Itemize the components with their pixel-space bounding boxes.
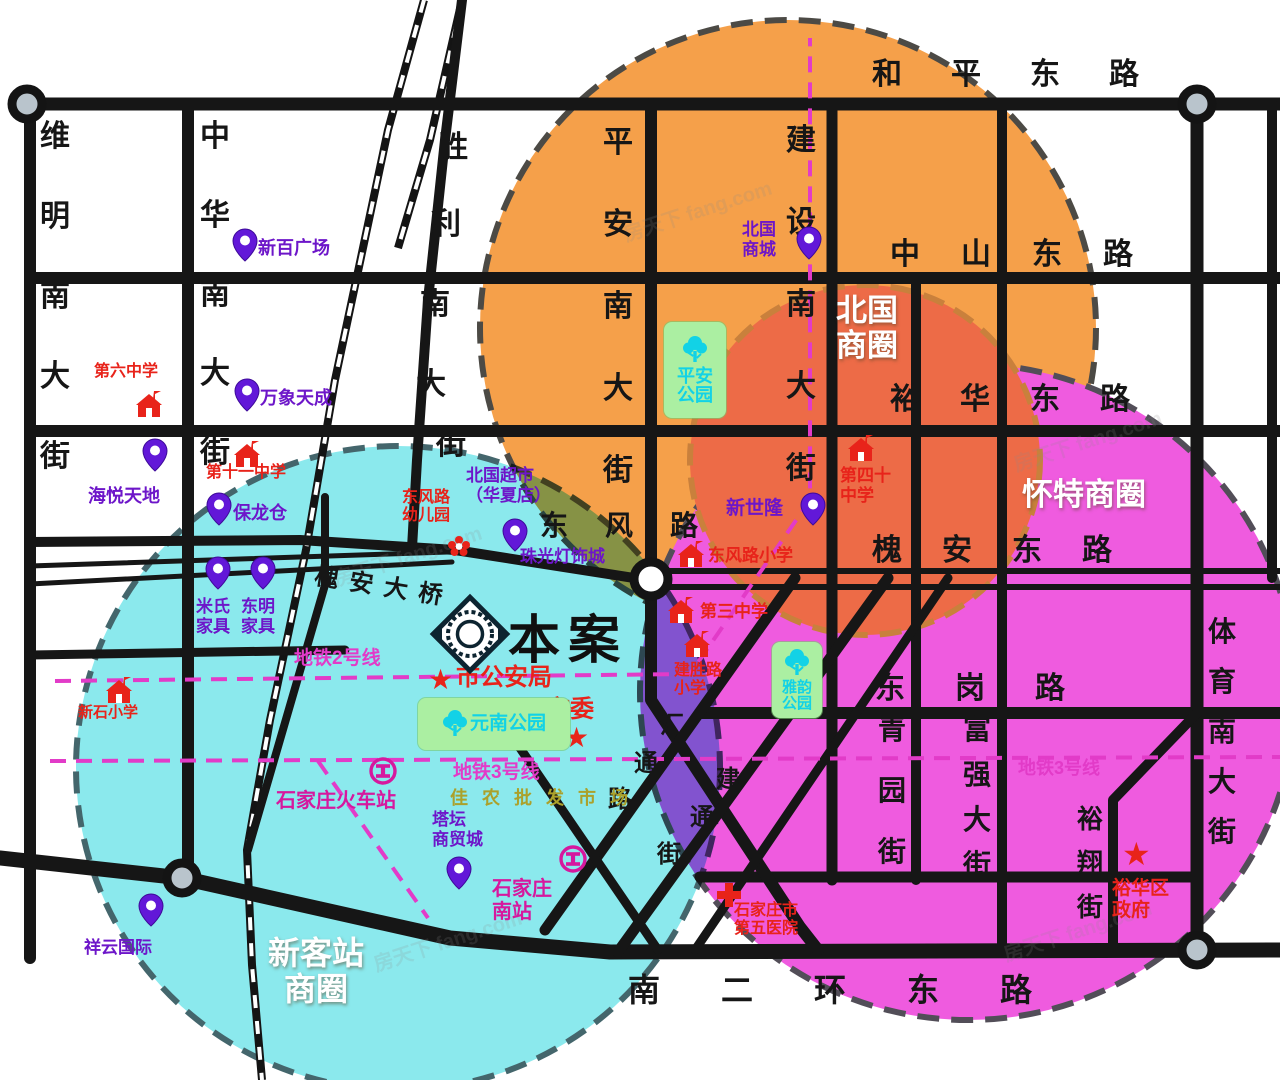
railway-station-icon xyxy=(368,756,398,786)
street-label-东岗路: 东 xyxy=(875,674,905,704)
poi-label: 石家庄市 第五医院 xyxy=(734,902,798,939)
poi-label: 地铁2号线 xyxy=(294,648,381,670)
street-label-平安南大街: 南 xyxy=(603,292,633,322)
railway-station-icon xyxy=(558,844,588,874)
street-label-东风路: 东 xyxy=(540,512,568,540)
street-label-南二环东路: 环 xyxy=(814,974,846,1006)
street-label-和平东路: 和 xyxy=(872,60,902,90)
street-label-富强大街: 街 xyxy=(963,851,991,879)
pin-icon-holder xyxy=(138,893,164,932)
pin-icon-holder xyxy=(446,856,472,895)
park-content: 雅韵公园 xyxy=(782,648,812,712)
map-pin-icon xyxy=(796,226,822,260)
street-label-中山东路: 中 xyxy=(890,240,920,270)
poi-label: 北国 商城 xyxy=(742,220,776,259)
street-label-南二环东路: 路 xyxy=(1000,974,1032,1006)
park-雅韵公园: 雅韵公园 xyxy=(772,642,822,718)
street-label-胜利南大街: 利 xyxy=(431,210,461,240)
poi-label: 海悦天地 xyxy=(88,486,160,507)
school-icon-holder xyxy=(846,434,876,467)
poi-label: 保龙仓 xyxy=(233,503,287,524)
school-icon-holder xyxy=(134,390,164,423)
street-label-裕华东路: 华 xyxy=(960,385,990,415)
rail-icon-holder xyxy=(368,756,398,791)
poi-label: 米氏 家具 xyxy=(196,597,230,636)
street-label-裕翔街: 街 xyxy=(1077,894,1103,920)
poi-label: 东明 家具 xyxy=(241,597,275,636)
business-circle-label-北国商圈: 北国商圈 xyxy=(836,294,898,363)
street-label-体育南大街: 南 xyxy=(1208,718,1236,746)
poi-label: 万象天成 xyxy=(260,388,332,409)
street-label-南二环东路: 东 xyxy=(907,974,939,1006)
street-label-槐安东路: 槐 xyxy=(872,536,902,566)
map-pin-icon xyxy=(446,856,472,890)
park-tree-icon xyxy=(784,648,810,678)
street-label-维明南大街: 明 xyxy=(40,202,70,232)
street-label-汇通路: 汇 xyxy=(660,714,684,738)
street-label-胜利南大街: 胜 xyxy=(438,133,468,163)
street-label-建通街: 建 xyxy=(716,768,740,792)
street-char: 安 xyxy=(347,568,375,598)
street-char: 槐 xyxy=(313,563,341,593)
street-label-平安南大街: 大 xyxy=(603,374,633,404)
park-label: 平安公园 xyxy=(677,367,713,405)
street-label-东风路: 路 xyxy=(670,512,698,540)
street-label-建设南大街: 街 xyxy=(786,454,816,484)
street-label-建设南大街: 建 xyxy=(786,126,816,156)
street-label-东岗路: 岗 xyxy=(955,674,985,704)
school-icon xyxy=(676,540,706,568)
poi-label: 第四十 中学 xyxy=(840,466,891,505)
map-pin-icon xyxy=(138,893,164,927)
street-label-中华南大街: 南 xyxy=(200,280,230,310)
street-label-青园街: 园 xyxy=(878,777,906,805)
poi-label: 第十一中学 xyxy=(206,464,286,482)
street-label-中山东路: 路 xyxy=(1103,240,1133,270)
poi-label: 珠光灯饰城 xyxy=(520,547,605,567)
street-label-富强大街: 强 xyxy=(963,761,991,789)
street-label-富强大街: 富 xyxy=(963,716,991,744)
pin-icon-holder xyxy=(796,226,822,265)
map-pin-icon xyxy=(234,378,260,412)
map-pin-icon xyxy=(232,228,258,262)
poi-label: 新石小学 xyxy=(78,704,138,721)
school-icon xyxy=(846,434,876,462)
street-label-东岗路: 路 xyxy=(1035,674,1065,704)
map-canvas: 房天下 fang.com房天下 fang.com房天下 fang.com房天下 … xyxy=(0,0,1280,1080)
poi-label: 石家庄 南站 xyxy=(492,878,552,924)
street-label-建设南大街: 南 xyxy=(786,290,816,320)
pin-icon-holder xyxy=(142,438,168,477)
park-content: 元南公园 xyxy=(442,709,546,739)
street-char: 大 xyxy=(382,574,410,604)
street-label-青园街: 街 xyxy=(878,838,906,866)
project-logo-icon xyxy=(424,588,516,685)
school-icon xyxy=(134,390,164,418)
street-label-胜利南大街: 街 xyxy=(436,430,466,460)
poi-label: 新百广场 xyxy=(258,238,330,259)
street-label-槐安东路: 路 xyxy=(1082,536,1112,566)
school-icon xyxy=(682,630,712,658)
street-label-青园街: 青 xyxy=(878,716,906,744)
street-label-维明南大街: 维 xyxy=(40,122,70,152)
street-label-汇通路: 通 xyxy=(634,752,658,776)
pin-icon-holder xyxy=(234,378,260,417)
poi-label: 地铁3号线 xyxy=(1018,758,1100,779)
poi-label: 祥云国际 xyxy=(84,938,152,958)
street-label-裕翔街: 翔 xyxy=(1077,850,1103,876)
park-tree-icon xyxy=(682,335,708,365)
street-label-和平东路: 东 xyxy=(1030,60,1060,90)
street-label-裕华东路: 裕 xyxy=(890,385,920,415)
street-label-南二环东路: 二 xyxy=(721,974,753,1006)
street-label-裕翔街: 裕 xyxy=(1077,806,1103,832)
park-元南公园: 元南公园 xyxy=(418,698,570,750)
street-label-平安南大街: 平 xyxy=(603,128,633,158)
project-name-label: 本案 xyxy=(508,598,628,673)
business-circle-label-新客站商圈: 新客站商圈 xyxy=(268,936,364,1008)
poi-label: 新世隆 xyxy=(726,498,783,520)
park-label: 雅韵公园 xyxy=(782,680,812,712)
poi-label: 北国超市 （华夏店） xyxy=(466,466,551,505)
poi-label: 塔坛 商贸城 xyxy=(432,810,483,849)
street-label-中华南大街: 中 xyxy=(200,122,230,152)
rail-icon-holder xyxy=(558,844,588,879)
poi-label: 东风路小学 xyxy=(708,546,793,566)
school-icon xyxy=(666,596,696,624)
street-label-建通街: 通 xyxy=(690,806,714,830)
street-label-平安南大街: 安 xyxy=(603,210,633,240)
street-label-东风路: 风 xyxy=(605,512,633,540)
street-label-体育南大街: 街 xyxy=(1208,818,1236,846)
poi-label: 建胜路 小学 xyxy=(674,662,722,699)
poi-label: 东风路 幼儿园 xyxy=(402,489,450,526)
street-label-裕华东路: 东 xyxy=(1030,385,1060,415)
poi-label: 第六中学 xyxy=(94,363,158,381)
street-label-建通街: 街 xyxy=(657,843,681,867)
street-label-维明南大街: 南 xyxy=(40,282,70,312)
street-label-体育南大街: 体 xyxy=(1208,618,1236,646)
street-label-富强大街: 大 xyxy=(963,806,991,834)
street-label-和平东路: 平 xyxy=(951,60,981,90)
pin-icon-holder xyxy=(800,492,826,531)
street-label-中华南大街: 华 xyxy=(200,201,230,231)
street-label-维明南大街: 大 xyxy=(40,362,70,392)
map-overlay-layer: 房天下 fang.com房天下 fang.com房天下 fang.com房天下 … xyxy=(0,0,1280,1080)
poi-label: 地铁3号线 xyxy=(453,762,540,784)
street-label-槐安东路: 东 xyxy=(1012,536,1042,566)
pin-icon-holder xyxy=(205,556,231,595)
school-icon-holder xyxy=(666,596,696,629)
park-content: 平安公园 xyxy=(677,335,713,405)
poi-label: 佳农批发市场 xyxy=(450,788,642,809)
park-tree-icon xyxy=(442,709,468,739)
street-label-裕华东路: 路 xyxy=(1100,385,1130,415)
street-label-南二环东路: 南 xyxy=(628,974,660,1006)
street-label-维明南大街: 街 xyxy=(40,442,70,472)
school-icon-holder xyxy=(682,630,712,663)
flower-icon-holder xyxy=(446,534,472,567)
kindergarten-flower-icon xyxy=(446,534,472,562)
pin-icon-holder xyxy=(206,492,232,531)
pin-icon-holder xyxy=(232,228,258,267)
street-label-胜利南大街: 南 xyxy=(420,290,450,320)
street-label-体育南大街: 大 xyxy=(1208,768,1236,796)
map-pin-icon xyxy=(205,556,231,590)
map-pin-icon xyxy=(800,492,826,526)
project-logo xyxy=(424,588,516,680)
school-icon xyxy=(104,676,134,704)
star-marker-icon: ★ xyxy=(1122,838,1151,870)
map-pin-icon xyxy=(206,492,232,526)
street-label-体育南大街: 育 xyxy=(1208,668,1236,696)
street-label-平安南大街: 街 xyxy=(603,456,633,486)
street-label-槐安东路: 安 xyxy=(942,536,972,566)
street-label-中华南大街: 大 xyxy=(200,359,230,389)
map-pin-icon xyxy=(142,438,168,472)
street-label-中山东路: 东 xyxy=(1032,240,1062,270)
school-icon-holder xyxy=(676,540,706,573)
map-pin-icon xyxy=(250,556,276,590)
street-label-胜利南大街: 大 xyxy=(416,370,446,400)
park-平安公园: 平安公园 xyxy=(664,322,726,418)
park-label: 元南公园 xyxy=(470,714,546,734)
poi-label: 第三中学 xyxy=(700,602,768,622)
street-label-建设南大街: 大 xyxy=(786,372,816,402)
pin-icon-holder xyxy=(250,556,276,595)
street-label-中山东路: 山 xyxy=(961,240,991,270)
poi-label: 石家庄火车站 xyxy=(276,790,396,813)
street-label-和平东路: 路 xyxy=(1109,60,1139,90)
business-circle-label-怀特商圈: 怀特商圈 xyxy=(1022,478,1146,513)
poi-label: 裕华区 政府 xyxy=(1112,878,1169,922)
